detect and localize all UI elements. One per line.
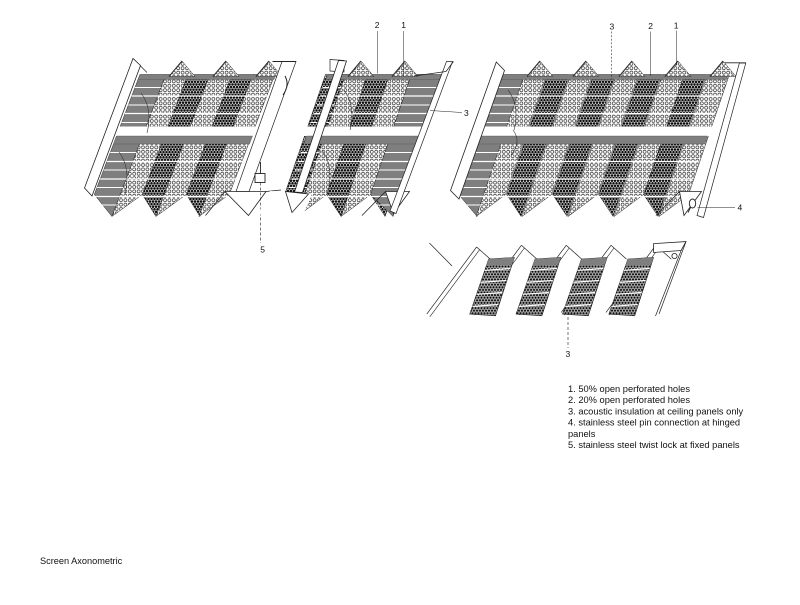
svg-text:Screen Axonometric: Screen Axonometric: [40, 556, 123, 566]
svg-text:5: 5: [260, 245, 265, 255]
svg-text:2: 2: [375, 20, 380, 30]
svg-text:3: 3: [610, 21, 615, 31]
svg-text:2: 2: [648, 21, 653, 31]
svg-text:1: 1: [674, 20, 679, 30]
svg-text:1: 1: [401, 20, 406, 30]
svg-text:panels: panels: [568, 429, 596, 439]
svg-text:3: 3: [464, 108, 469, 118]
svg-text:5. stainless steel twist lock: 5. stainless steel twist lock at fixed p…: [568, 440, 740, 450]
svg-text:4. stainless steel pin connect: 4. stainless steel pin connection at hin…: [568, 418, 740, 428]
svg-text:4: 4: [738, 203, 743, 213]
svg-text:3. acoustic insulation at ceil: 3. acoustic insulation at ceiling panels…: [568, 406, 744, 416]
svg-text:3: 3: [566, 349, 571, 359]
svg-text:1. 50% open perforated holes: 1. 50% open perforated holes: [568, 384, 690, 394]
svg-text:2. 20% open perforated holes: 2. 20% open perforated holes: [568, 395, 690, 405]
